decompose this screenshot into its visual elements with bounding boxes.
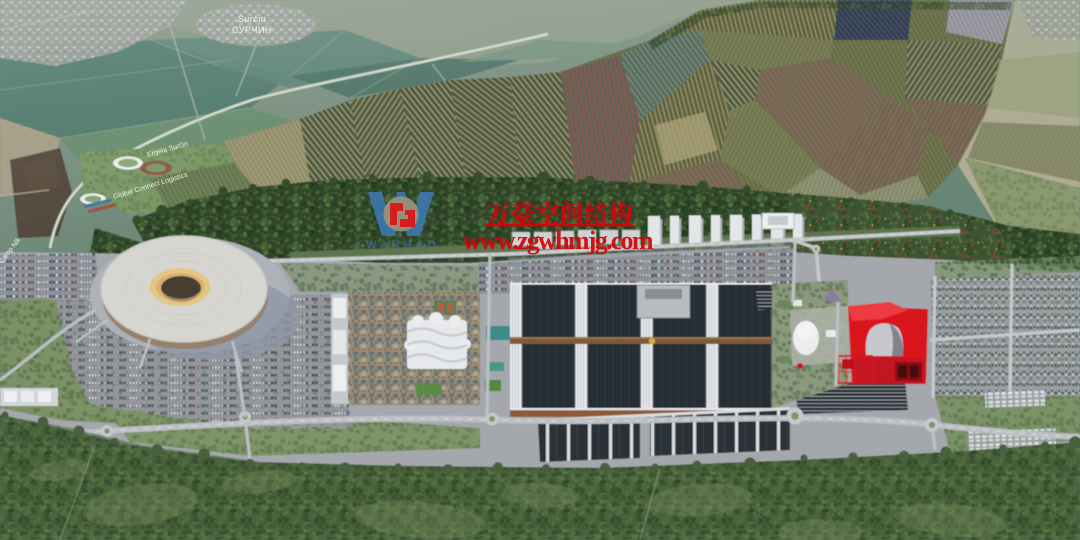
svg-text:www.zgwhmjg.com: www.zgwhmjg.com — [463, 226, 654, 255]
svg-text:Surčin: Surčin — [238, 14, 267, 24]
svg-text:СУРЧИН: СУРЧИН — [232, 25, 272, 35]
